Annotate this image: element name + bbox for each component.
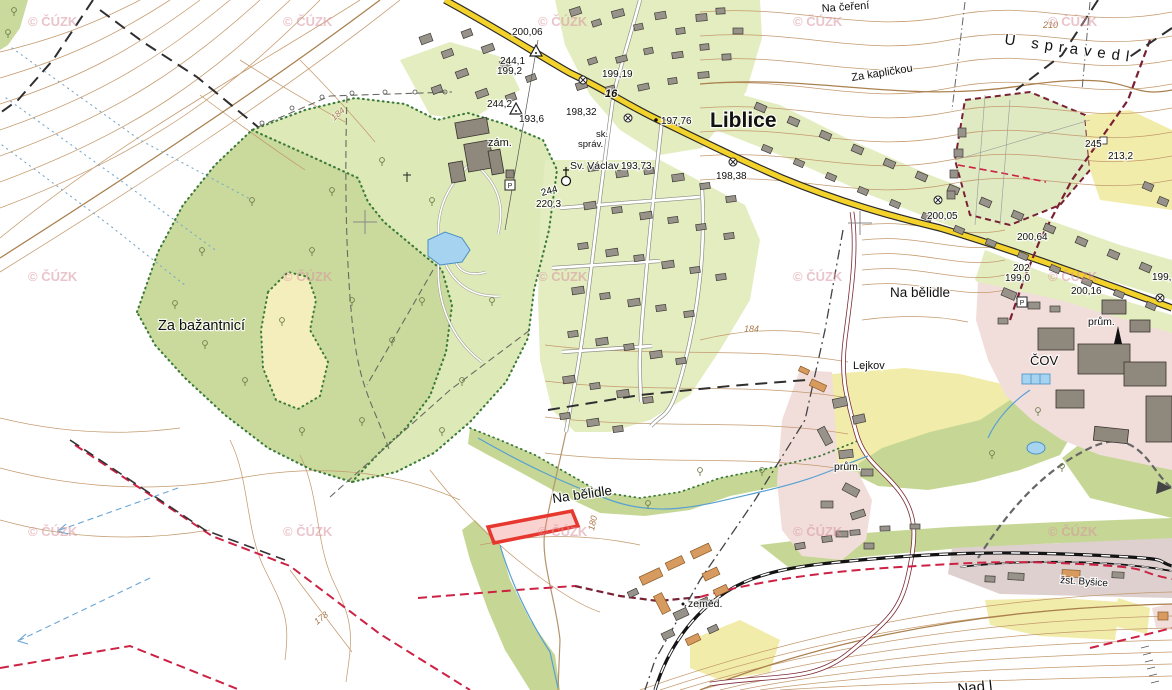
building — [572, 286, 585, 295]
building — [560, 412, 571, 419]
building — [716, 273, 727, 280]
building — [634, 254, 645, 261]
building — [1112, 572, 1124, 579]
building — [821, 501, 833, 508]
u-spravedl-green — [955, 92, 1090, 225]
building — [606, 248, 619, 257]
bottom-mid-yellow — [690, 620, 780, 680]
building — [880, 526, 890, 531]
building — [506, 170, 514, 178]
cuzk-watermark: © ČÚZK — [793, 269, 843, 284]
building — [839, 449, 854, 458]
building — [716, 8, 725, 14]
elev-244-2: 244,2 — [487, 99, 512, 110]
label-za-bazantnici: Za bažantnicí — [158, 318, 245, 334]
building — [612, 206, 623, 213]
elev-199-2: 199,2 — [497, 66, 522, 77]
elev-198-32: 198,32 — [566, 107, 597, 118]
contour-label-180: 180 — [586, 515, 599, 532]
building — [461, 29, 473, 39]
elev-199-19: 199,19 — [602, 69, 633, 80]
building — [448, 161, 465, 183]
cadastre-boundary-red — [75, 445, 470, 690]
elev-245: 245 — [1085, 139, 1102, 150]
building — [1078, 344, 1130, 374]
elev-197-76: 197,76 — [661, 116, 692, 127]
label-zemed: zeměd. — [688, 598, 722, 610]
building — [684, 310, 695, 317]
building — [985, 576, 995, 583]
building — [958, 128, 966, 137]
building — [696, 223, 707, 230]
label-u-spravedl: U spravedl — [1003, 31, 1136, 66]
building — [1146, 396, 1172, 442]
contour-label-178: 178 — [312, 609, 330, 626]
building — [696, 14, 708, 22]
building — [947, 191, 955, 199]
building — [1124, 362, 1166, 386]
map-viewport: P P Liblice Za bažantnicí Na bělidle Na … — [0, 0, 1172, 690]
building — [419, 33, 433, 45]
building — [910, 524, 920, 529]
building — [596, 337, 609, 346]
building — [662, 260, 675, 269]
contour-label-184b: 184 — [744, 324, 759, 334]
building — [639, 568, 663, 585]
elev-213-2: 213,2 — [1108, 151, 1133, 162]
svg-text:P: P — [1020, 300, 1025, 307]
elev-200-05: 200,05 — [927, 211, 958, 222]
building — [643, 396, 654, 403]
cuzk-watermark: © ČÚZK — [538, 269, 588, 284]
elev-198-38: 198,38 — [716, 171, 747, 182]
building — [1093, 426, 1128, 443]
building — [795, 542, 806, 550]
station-area — [948, 538, 1172, 598]
building — [1028, 302, 1040, 309]
building — [690, 266, 701, 273]
cuzk-watermark: © ČÚZK — [283, 524, 333, 539]
label-nad-partial: Nad l — [957, 677, 994, 690]
label-lejkov: Lejkov — [853, 360, 885, 372]
cuzk-watermark: © ČÚZK — [28, 14, 78, 29]
elev-193-73: 193,73 — [621, 161, 652, 172]
building — [724, 232, 735, 239]
label-sv-vaclav: Sv. Václav — [570, 160, 620, 172]
building — [668, 216, 679, 223]
label-cov: ČOV — [1030, 353, 1059, 368]
building — [700, 182, 711, 189]
building — [587, 418, 600, 427]
building — [654, 11, 666, 20]
building — [627, 588, 639, 598]
building — [1056, 390, 1084, 408]
label-prum-left: prům. — [834, 461, 861, 473]
label-na-belidle-top: Na bělidle — [890, 285, 950, 300]
building — [702, 567, 720, 581]
elev-200-64: 200,64 — [1017, 232, 1048, 243]
building — [864, 543, 874, 549]
building — [1158, 612, 1168, 620]
label-prum-right: prům. — [1088, 316, 1115, 328]
building — [590, 382, 601, 389]
cadastral-map: P P Liblice Za bažantnicí Na bělidle Na … — [0, 0, 1172, 690]
label-liblice: Liblice — [710, 109, 777, 132]
building — [673, 607, 689, 620]
building — [861, 469, 873, 476]
svg-text:P: P — [508, 183, 513, 190]
building — [563, 375, 576, 384]
label-za-kaplickou: Za kapličkou — [851, 62, 914, 84]
building — [661, 629, 675, 640]
cuzk-watermark: © ČÚZK — [283, 269, 333, 284]
building — [672, 51, 684, 58]
building — [726, 195, 737, 202]
building — [998, 318, 1008, 324]
cuzk-watermark: © ČÚZK — [1048, 14, 1098, 29]
building — [672, 173, 685, 182]
building — [1102, 300, 1126, 314]
stream-south-green — [462, 520, 560, 690]
elev-200-16: 200,16 — [1071, 286, 1102, 297]
label-zam: zám. — [488, 137, 512, 149]
building — [950, 170, 958, 178]
building — [722, 54, 731, 60]
cuzk-watermark: © ČÚZK — [28, 269, 78, 284]
cuzk-watermark: © ČÚZK — [28, 524, 78, 539]
building — [690, 543, 712, 559]
building — [600, 292, 611, 299]
elev-199-edge: 199, — [1152, 272, 1171, 283]
building — [650, 350, 663, 359]
land-cover-areas — [0, 0, 1172, 690]
building — [640, 211, 653, 220]
building — [617, 389, 630, 398]
elev-199-0: 199,0 — [1005, 273, 1030, 284]
cuzk-watermark: © ČÚZK — [793, 14, 843, 29]
building — [628, 298, 641, 307]
label-road-16: 16 — [605, 88, 618, 100]
building — [481, 43, 495, 54]
elev-193-6: 193,6 — [519, 114, 544, 125]
building — [1130, 320, 1150, 332]
building — [653, 593, 670, 615]
tree-icon — [698, 468, 703, 476]
cuzk-watermark: © ČÚZK — [793, 524, 843, 539]
elev-220-3: 220,3 — [536, 199, 561, 210]
label-sprav: správ. — [578, 139, 603, 150]
building — [1008, 573, 1024, 581]
building — [568, 330, 579, 337]
building — [668, 77, 678, 84]
building — [656, 304, 667, 311]
building — [954, 149, 963, 157]
building — [850, 530, 860, 536]
building — [584, 201, 597, 210]
cuzk-watermark: © ČÚZK — [1048, 524, 1098, 539]
building — [733, 28, 743, 34]
building — [613, 425, 624, 432]
small-pond — [1027, 442, 1045, 454]
building — [676, 27, 686, 34]
building — [1050, 306, 1060, 312]
building — [700, 44, 709, 51]
building — [698, 72, 709, 79]
cuzk-watermark: © ČÚZK — [283, 14, 333, 29]
cuzk-watermark: © ČÚZK — [1048, 269, 1098, 284]
building — [676, 357, 687, 364]
cuzk-watermark: © ČÚZK — [538, 524, 588, 539]
drainage-arrows — [18, 488, 178, 644]
label-na-cereni: Na čeření — [821, 0, 869, 15]
cov-basin — [1022, 374, 1050, 384]
cuzk-watermark: © ČÚZK — [538, 14, 588, 29]
building — [578, 242, 589, 249]
building — [624, 343, 635, 350]
building — [665, 556, 685, 571]
building — [1038, 328, 1074, 350]
